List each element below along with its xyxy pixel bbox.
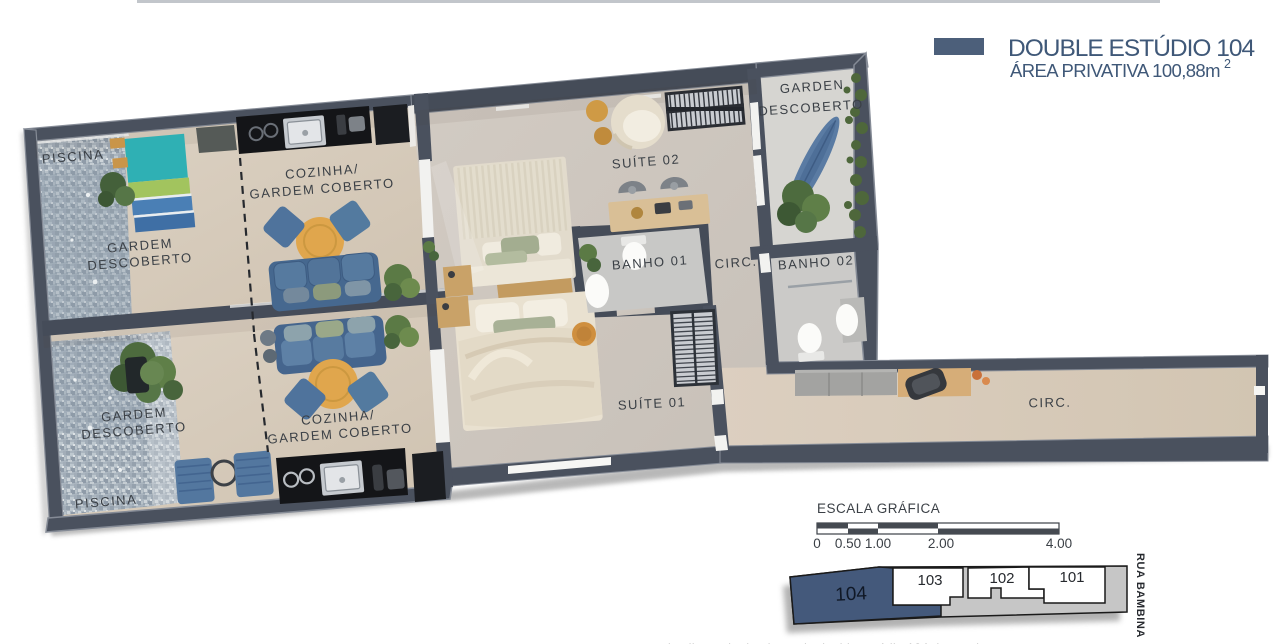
svg-text:2.00: 2.00	[928, 536, 954, 551]
svg-text:4.00: 4.00	[1046, 536, 1072, 551]
svg-text:0.50: 0.50	[835, 536, 861, 551]
svg-text:104: 104	[835, 583, 868, 606]
svg-text:CIRC.: CIRC.	[1028, 395, 1071, 411]
svg-text:103: 103	[917, 572, 942, 589]
svg-text:0: 0	[813, 536, 821, 551]
svg-text:DOUBLE ESTÚDIO 104: DOUBLE ESTÚDIO 104	[1008, 35, 1255, 62]
svg-text:ESCALA GRÁFICA: ESCALA GRÁFICA	[817, 501, 940, 516]
svg-text:ÁREA PRIVATIVA 100,88m: ÁREA PRIVATIVA 100,88m	[1010, 60, 1220, 81]
svg-text:2: 2	[1224, 57, 1231, 71]
svg-text:101: 101	[1059, 569, 1084, 586]
svg-text:102: 102	[989, 570, 1014, 587]
svg-text:CIRC.: CIRC.	[714, 254, 758, 272]
svg-text:1.00: 1.00	[865, 536, 891, 551]
svg-text:RUA BAMBINA: RUA BAMBINA	[1134, 553, 1146, 638]
